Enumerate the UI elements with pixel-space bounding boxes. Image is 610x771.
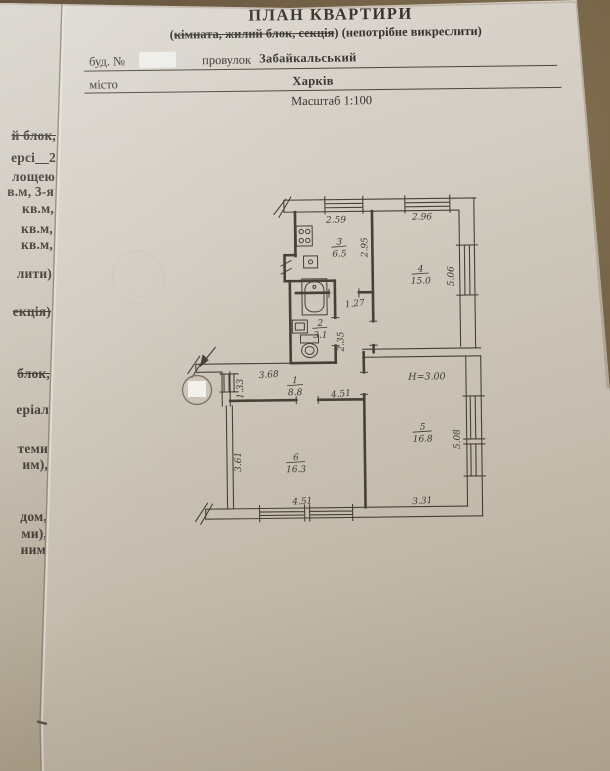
paper-artifacts bbox=[0, 0, 610, 771]
hole-punch-label bbox=[188, 381, 206, 397]
paper-edge-shadow bbox=[577, 1, 608, 388]
paper-edge-shadow bbox=[0, 2, 577, 9]
fold-highlight bbox=[42, 0, 64, 771]
crease-mark bbox=[112, 251, 164, 303]
document-page: й блок, ерсі__2 лощею в.м, 3-я кв.м, кв.… bbox=[0, 0, 610, 771]
photo-background: й блок, ерсі__2 лощею в.м, 3-я кв.м, кв.… bbox=[0, 0, 610, 771]
crease-mark bbox=[122, 261, 158, 297]
staple bbox=[37, 722, 47, 725]
